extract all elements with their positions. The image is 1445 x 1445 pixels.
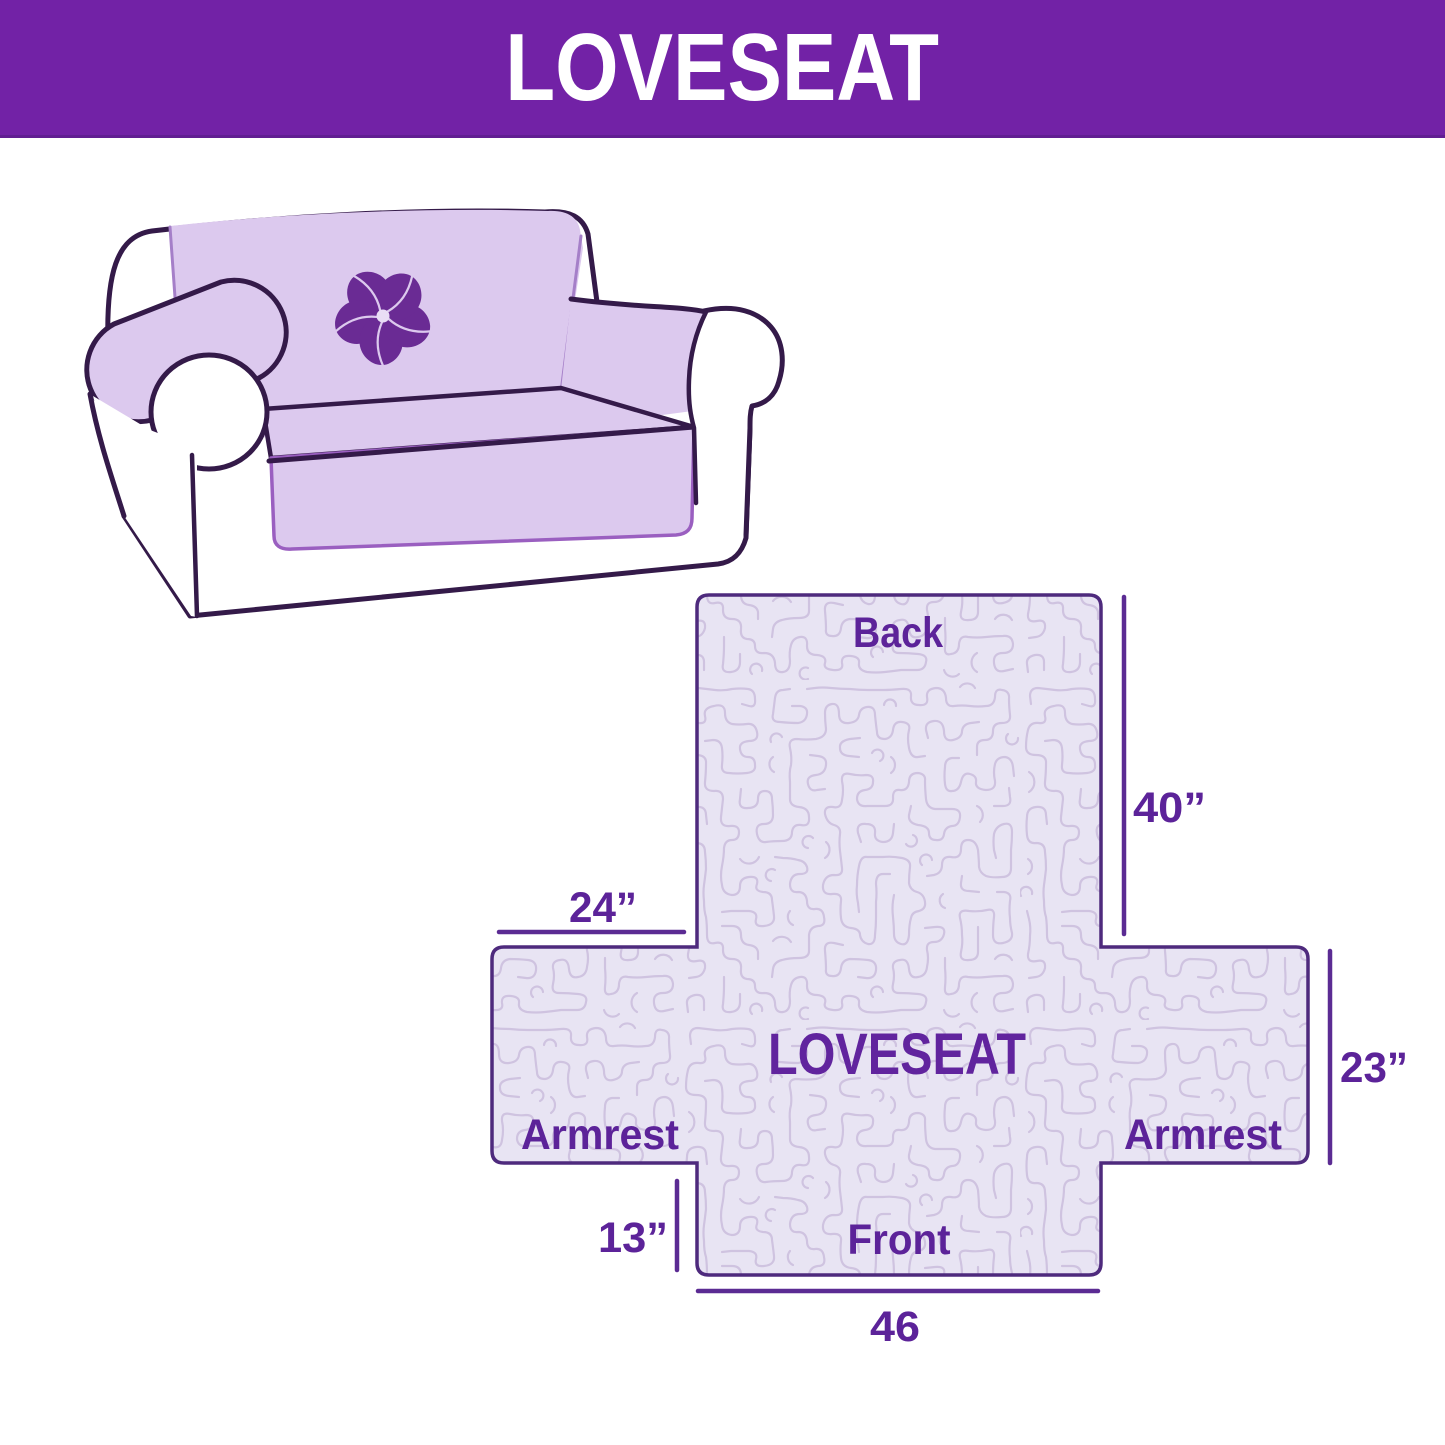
svg-text:Armrest: Armrest [521, 1111, 679, 1159]
svg-text:23”: 23” [1340, 1044, 1408, 1092]
svg-text:LOVESEAT: LOVESEAT [768, 1022, 1026, 1087]
svg-text:46: 46 [870, 1303, 920, 1351]
svg-text:40”: 40” [1133, 784, 1206, 832]
svg-text:Back: Back [853, 609, 943, 657]
svg-text:Armrest: Armrest [1124, 1111, 1282, 1159]
svg-text:13”: 13” [598, 1214, 668, 1262]
svg-text:Front: Front [848, 1216, 951, 1264]
svg-text:24”: 24” [569, 884, 637, 932]
